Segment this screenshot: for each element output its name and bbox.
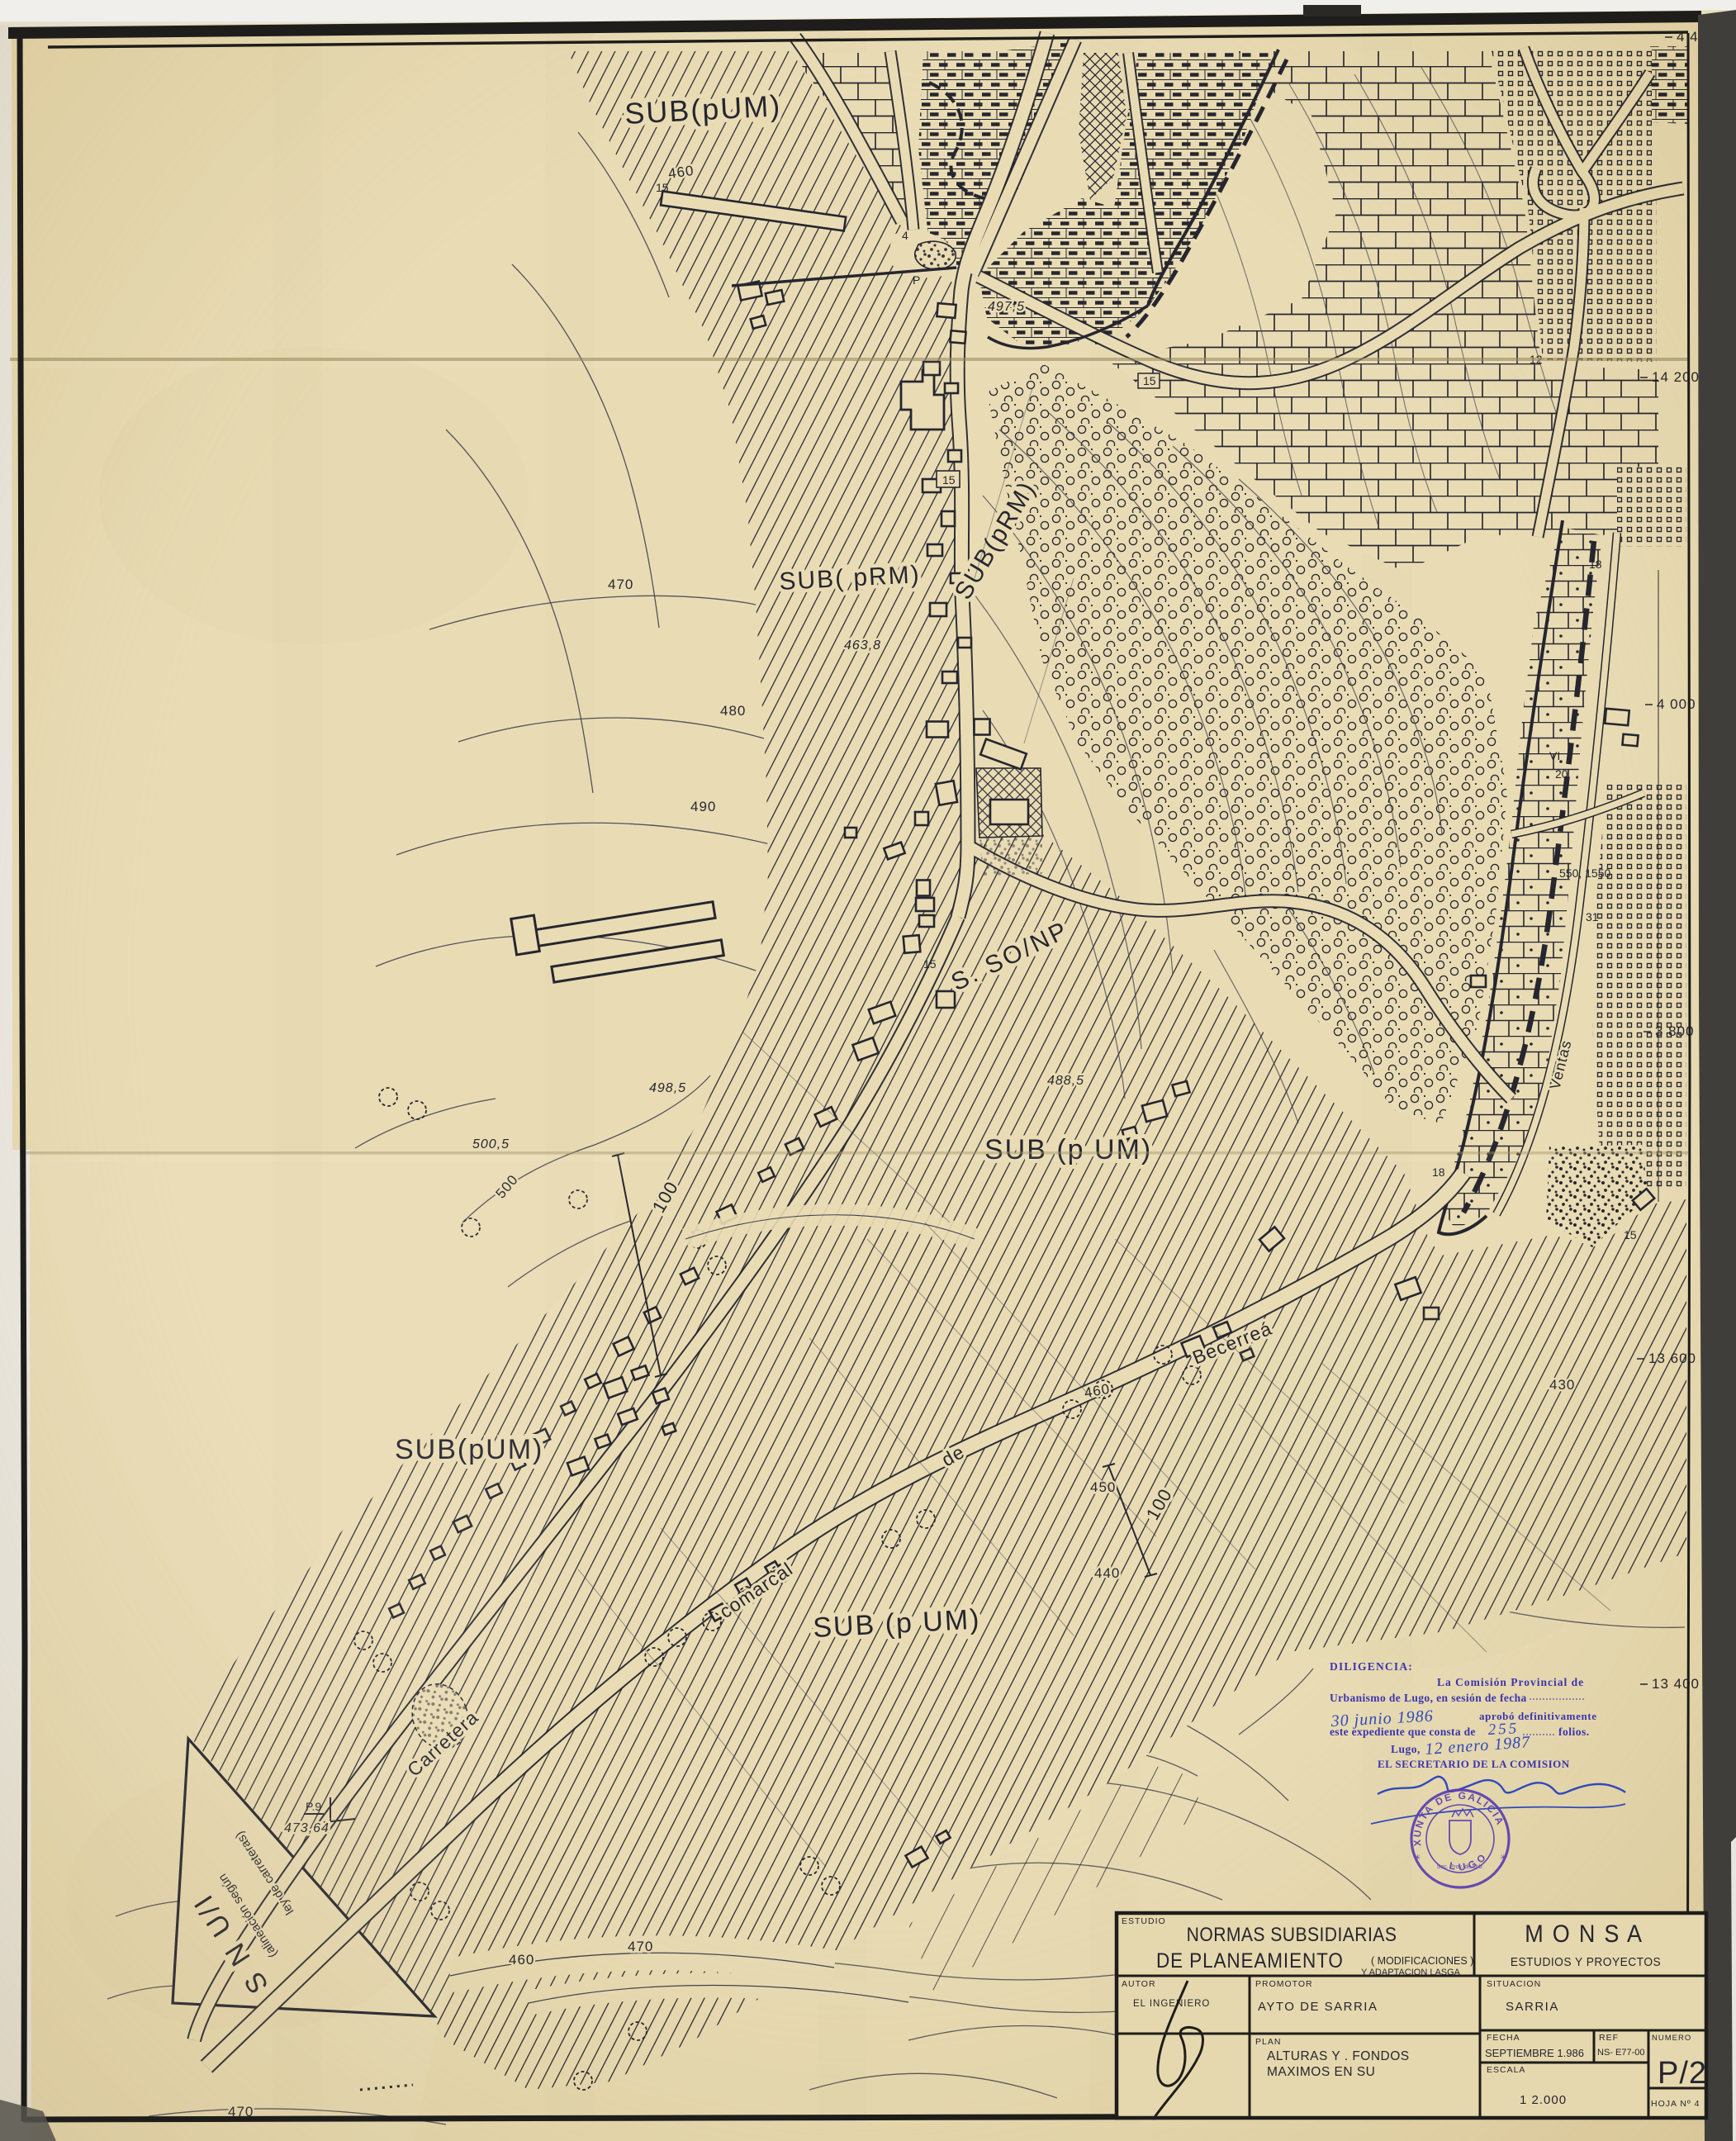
svg-text:EL INGENIERO: EL INGENIERO bbox=[1133, 1999, 1210, 2009]
svg-text:REF: REF bbox=[1599, 2033, 1619, 2043]
svg-text:ESTUDIO: ESTUDIO bbox=[1122, 1916, 1166, 1926]
svg-text:SEPTIEMBRE 1.986: SEPTIEMBRE 1.986 bbox=[1485, 2047, 1584, 2059]
svg-text:Urbanismo de Lugo, en sesión d: Urbanismo de Lugo, en sesión de fecha bbox=[1330, 1692, 1527, 1704]
svg-text:HOJA Nº 4: HOJA Nº 4 bbox=[1651, 2099, 1700, 2109]
svg-text:NS- E77-00: NS- E77-00 bbox=[1597, 2048, 1644, 2058]
svg-text:ESCALA: ESCALA bbox=[1487, 2065, 1525, 2075]
svg-text:1 2.000: 1 2.000 bbox=[1520, 2093, 1567, 2107]
svg-text:DE PLANEAMIENTO: DE PLANEAMIENTO bbox=[1156, 1949, 1344, 1972]
svg-text:NUMERO: NUMERO bbox=[1652, 2034, 1691, 2043]
svg-text:ALTURAS Y . FONDOS: ALTURAS Y . FONDOS bbox=[1267, 2049, 1410, 2063]
svg-text:FECHA: FECHA bbox=[1487, 2033, 1520, 2043]
svg-text:EL SECRETARIO DE LA COMISION: EL SECRETARIO DE LA COMISION bbox=[1378, 1758, 1570, 1770]
svg-text:Lugo,: Lugo, bbox=[1391, 1743, 1421, 1755]
svg-text:folios.: folios. bbox=[1558, 1726, 1590, 1738]
svg-text:SITUACION: SITUACION bbox=[1487, 1979, 1541, 1989]
svg-text:✳: ✳ bbox=[1500, 1854, 1506, 1863]
svg-text:ESTUDIOS Y PROYECTOS: ESTUDIOS Y PROYECTOS bbox=[1511, 1955, 1661, 1968]
svg-text:Sec. Prov. de Urb.: Sec. Prov. de Urb. bbox=[1437, 1864, 1484, 1870]
svg-text:( MODIFICACIONES ): ( MODIFICACIONES ) bbox=[1371, 1955, 1473, 1967]
svg-text:La Comisión Provincial de: La Comisión Provincial de bbox=[1437, 1676, 1584, 1688]
svg-text:PLAN: PLAN bbox=[1255, 2037, 1281, 2047]
svg-text:P/2: P/2 bbox=[1658, 2056, 1707, 2091]
svg-text:M O N S A: M O N S A bbox=[1525, 1920, 1644, 1949]
svg-text:DILIGENCIA:: DILIGENCIA: bbox=[1330, 1660, 1413, 1673]
svg-text:AYTO DE SARRIA: AYTO DE SARRIA bbox=[1258, 2000, 1378, 2014]
svg-text:PROMOTOR: PROMOTOR bbox=[1255, 1979, 1313, 1989]
svg-text:MAXIMOS EN SU: MAXIMOS EN SU bbox=[1267, 2065, 1375, 2079]
svg-text:AUTOR: AUTOR bbox=[1122, 1979, 1156, 1989]
svg-text:este expediente que consta de: este expediente que consta de bbox=[1330, 1726, 1476, 1738]
svg-text:SARRIA: SARRIA bbox=[1506, 2000, 1559, 2014]
svg-text:NORMAS SUBSIDIARIAS: NORMAS SUBSIDIARIAS bbox=[1187, 1924, 1397, 1946]
svg-text:✳: ✳ bbox=[1414, 1854, 1421, 1863]
svg-text:Y ADAPTACION LASGA: Y ADAPTACION LASGA bbox=[1361, 1968, 1461, 1977]
